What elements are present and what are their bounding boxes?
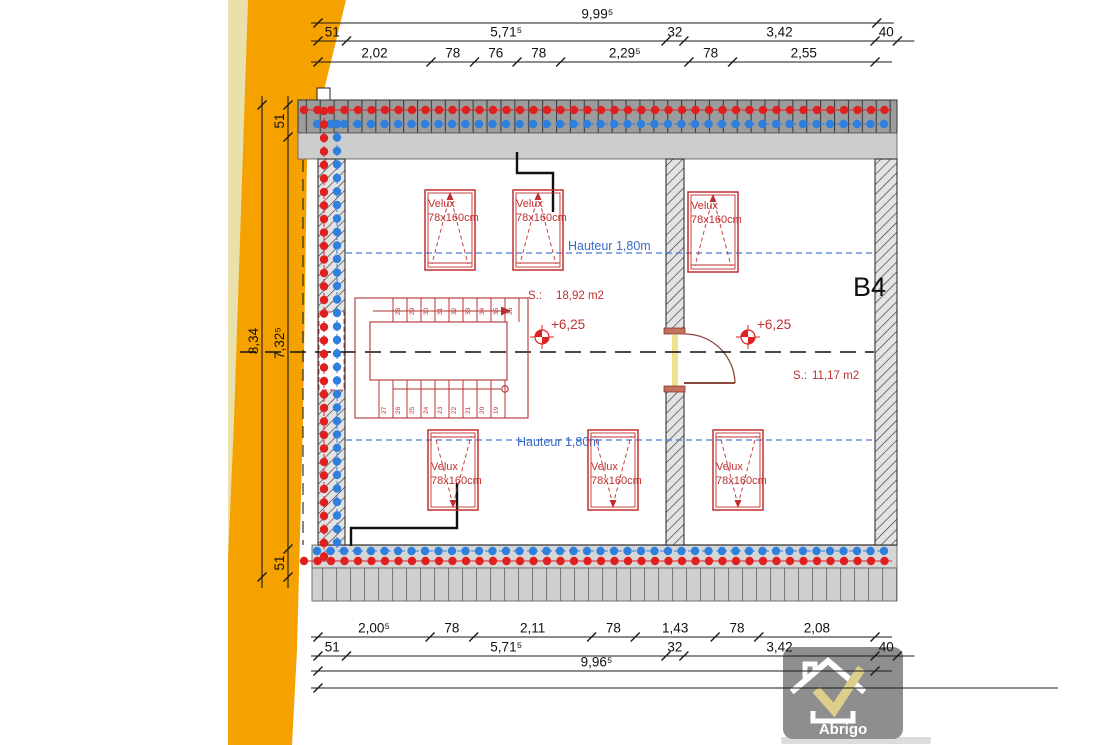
dim-label: 76 xyxy=(488,46,503,61)
dot-marker xyxy=(786,106,794,114)
dot-marker xyxy=(320,323,328,331)
dot-marker xyxy=(320,255,328,263)
dot-marker xyxy=(786,557,794,565)
dot-marker xyxy=(320,431,328,439)
dot-marker xyxy=(367,547,375,555)
interior-wall-upper xyxy=(666,159,684,333)
velux-label: Velux xyxy=(516,198,543,210)
dot-marker xyxy=(435,557,443,565)
dot-marker xyxy=(333,268,341,276)
dot-marker xyxy=(333,498,341,506)
dot-marker xyxy=(813,106,821,114)
dot-marker xyxy=(502,120,510,128)
dot-marker xyxy=(758,120,766,128)
dot-marker xyxy=(333,336,341,344)
dot-marker xyxy=(502,557,510,565)
dot-marker xyxy=(340,557,348,565)
dot-marker xyxy=(394,106,402,114)
dot-marker xyxy=(677,547,685,555)
dot-marker xyxy=(320,296,328,304)
dot-marker xyxy=(394,120,402,128)
dim-label: 51 xyxy=(325,640,340,655)
level-label: +6,25 xyxy=(757,317,791,332)
dot-marker xyxy=(340,547,348,555)
dot-marker xyxy=(333,538,341,546)
dot-marker xyxy=(812,547,820,555)
dot-marker xyxy=(556,547,564,555)
dot-marker xyxy=(799,106,807,114)
stair-number: 25 xyxy=(409,406,416,414)
dot-marker xyxy=(853,557,861,565)
dot-marker xyxy=(333,363,341,371)
dot-marker xyxy=(320,539,328,547)
dot-marker xyxy=(333,511,341,519)
velux-size-label: 78x160cm xyxy=(428,212,479,224)
dot-marker xyxy=(759,557,767,565)
dot-marker xyxy=(340,106,348,114)
dot-marker xyxy=(678,557,686,565)
velux-label: Velux xyxy=(691,200,718,212)
dot-marker xyxy=(300,557,308,565)
dot-marker xyxy=(745,106,753,114)
dot-marker xyxy=(826,120,834,128)
dot-marker xyxy=(745,557,753,565)
dot-marker xyxy=(320,147,328,155)
dim-label-wall-bottom: 51 xyxy=(272,555,287,570)
dot-marker xyxy=(623,120,631,128)
dot-marker xyxy=(320,174,328,182)
dot-marker xyxy=(320,309,328,317)
dot-marker xyxy=(569,547,577,555)
dim-label: 3,42 xyxy=(766,640,792,655)
dot-marker xyxy=(320,107,328,115)
dot-marker xyxy=(556,120,564,128)
dim-label: 32 xyxy=(667,25,682,40)
dot-marker xyxy=(610,106,618,114)
dot-marker xyxy=(610,120,618,128)
dot-marker xyxy=(333,120,341,128)
dot-marker xyxy=(867,106,875,114)
dot-marker xyxy=(610,547,618,555)
dot-marker xyxy=(596,547,604,555)
stair-number: 31 xyxy=(437,307,444,315)
door-jamb-top xyxy=(664,328,685,334)
dot-marker xyxy=(381,106,389,114)
dot-marker xyxy=(745,547,753,555)
dot-marker xyxy=(354,106,362,114)
dot-marker xyxy=(320,458,328,466)
dot-marker xyxy=(435,106,443,114)
dot-marker xyxy=(758,547,766,555)
dot-marker xyxy=(333,187,341,195)
corner-marker xyxy=(317,88,330,100)
dot-marker xyxy=(320,350,328,358)
velux-label: Velux xyxy=(431,461,458,473)
stair-number: 29 xyxy=(409,307,416,315)
dot-marker xyxy=(529,120,537,128)
velux-label: Velux xyxy=(716,461,743,473)
dim-label-inner-height: 7,32⁵ xyxy=(272,327,287,359)
dot-marker xyxy=(367,106,375,114)
dot-marker xyxy=(731,120,739,128)
dot-marker xyxy=(333,228,341,236)
dot-marker xyxy=(380,547,388,555)
dot-marker xyxy=(664,106,672,114)
dot-marker xyxy=(880,547,888,555)
dot-marker xyxy=(880,557,888,565)
dot-marker xyxy=(300,106,308,114)
dot-marker xyxy=(826,106,834,114)
dot-marker xyxy=(839,120,847,128)
dot-marker xyxy=(624,557,632,565)
dim-label: 1,43 xyxy=(662,621,688,636)
dot-marker xyxy=(475,557,483,565)
dot-marker xyxy=(731,547,739,555)
dot-marker xyxy=(320,282,328,290)
dim-label: 78 xyxy=(531,46,546,61)
velux-label: Velux xyxy=(591,461,618,473)
dot-marker xyxy=(327,557,335,565)
dot-marker xyxy=(637,106,645,114)
dot-marker xyxy=(448,120,456,128)
dim-label: 9,96⁵ xyxy=(581,655,613,670)
stair-number: 34 xyxy=(479,307,486,315)
dot-marker xyxy=(650,120,658,128)
door-jamb-bottom xyxy=(664,386,685,392)
door-threshold xyxy=(672,335,678,386)
dot-marker xyxy=(866,547,874,555)
dot-marker xyxy=(596,120,604,128)
dim-label: 2,11 xyxy=(520,621,545,636)
velux-size-label: 78x160cm xyxy=(691,214,742,226)
dot-marker xyxy=(475,120,483,128)
dot-marker xyxy=(772,120,780,128)
section-label: B4 xyxy=(853,272,886,302)
dot-marker xyxy=(515,120,523,128)
dot-marker xyxy=(583,106,591,114)
floor-plan-canvas: Abrigo xyxy=(0,0,1120,745)
dot-marker xyxy=(704,120,712,128)
dot-marker xyxy=(866,120,874,128)
stair-number: 21 xyxy=(465,406,472,414)
dot-marker xyxy=(333,403,341,411)
area-value: 11,17 m2 xyxy=(812,370,859,382)
dot-marker xyxy=(462,557,470,565)
dot-marker xyxy=(367,120,375,128)
dot-marker xyxy=(354,557,362,565)
dot-marker xyxy=(333,390,341,398)
dot-marker xyxy=(826,557,834,565)
dot-marker xyxy=(880,106,888,114)
area-prefix: S.: xyxy=(793,370,807,382)
dot-marker xyxy=(320,120,328,128)
dot-marker xyxy=(333,133,341,141)
dot-marker xyxy=(664,547,672,555)
dot-marker xyxy=(569,120,577,128)
dot-marker xyxy=(448,557,456,565)
dim-label: 78 xyxy=(729,621,744,636)
top-wall-stud-band xyxy=(298,100,897,133)
dim-label-total-height: 8,34 xyxy=(246,327,261,354)
interior-wall-lower xyxy=(666,388,684,545)
velux-size-label: 78x160cm xyxy=(591,475,642,487)
dot-marker xyxy=(785,547,793,555)
dot-marker xyxy=(799,547,807,555)
dot-marker xyxy=(583,547,591,555)
stair-number: 27 xyxy=(381,406,388,414)
room1-area-label: S.: 18,92 m2 xyxy=(528,290,604,302)
velux-size-label: 78x160cm xyxy=(716,475,767,487)
dot-marker xyxy=(880,120,888,128)
dot-marker xyxy=(333,147,341,155)
dot-marker xyxy=(320,215,328,223)
dot-marker xyxy=(637,120,645,128)
dot-marker xyxy=(718,120,726,128)
dot-marker xyxy=(488,120,496,128)
dot-marker xyxy=(853,547,861,555)
dot-marker xyxy=(867,557,875,565)
stair-number: 20 xyxy=(479,406,486,414)
dot-marker xyxy=(333,444,341,452)
dot-marker xyxy=(381,557,389,565)
dot-marker xyxy=(853,106,861,114)
dot-marker xyxy=(516,557,524,565)
top-wall-plate-band xyxy=(298,133,897,159)
dot-marker xyxy=(434,120,442,128)
dot-marker xyxy=(570,557,578,565)
dot-marker xyxy=(705,557,713,565)
dot-marker xyxy=(394,557,402,565)
dot-marker xyxy=(320,188,328,196)
dot-marker xyxy=(718,557,726,565)
dot-marker xyxy=(333,376,341,384)
dot-marker xyxy=(488,547,496,555)
dot-marker xyxy=(651,106,659,114)
stair-number: 23 xyxy=(437,406,444,414)
dot-marker xyxy=(732,557,740,565)
dot-marker xyxy=(313,547,321,555)
dot-marker xyxy=(799,120,807,128)
dot-marker xyxy=(333,525,341,533)
dot-marker xyxy=(556,106,564,114)
dot-marker xyxy=(333,457,341,465)
hauteur-label-top: Hauteur 1,80m xyxy=(568,239,651,253)
dot-marker xyxy=(718,106,726,114)
dot-marker xyxy=(367,557,375,565)
dot-marker xyxy=(691,120,699,128)
dot-marker xyxy=(624,106,632,114)
dim-label-wall-top: 51 xyxy=(272,113,287,128)
dot-marker xyxy=(320,377,328,385)
dot-marker xyxy=(320,269,328,277)
dot-marker xyxy=(353,547,361,555)
dot-marker xyxy=(489,106,497,114)
dot-marker xyxy=(320,525,328,533)
logo-wordmark: Abrigo xyxy=(819,721,867,738)
dot-marker xyxy=(543,557,551,565)
dot-marker xyxy=(320,390,328,398)
dot-marker xyxy=(853,120,861,128)
dot-marker xyxy=(408,557,416,565)
stair-number: 24 xyxy=(423,406,430,414)
dot-marker xyxy=(678,106,686,114)
dim-label: 40 xyxy=(879,640,894,655)
dim-label: 78 xyxy=(444,621,459,636)
velux-size-label: 78x160cm xyxy=(516,212,567,224)
dot-marker xyxy=(333,201,341,209)
dot-marker xyxy=(650,547,658,555)
dot-marker xyxy=(333,282,341,290)
dot-marker xyxy=(839,547,847,555)
dot-marker xyxy=(556,557,564,565)
dot-marker xyxy=(516,106,524,114)
dot-marker xyxy=(421,106,429,114)
right-wall xyxy=(875,159,897,545)
dot-marker xyxy=(813,557,821,565)
dot-marker xyxy=(353,120,361,128)
dot-marker xyxy=(326,547,334,555)
dot-marker xyxy=(785,120,793,128)
dot-marker xyxy=(333,214,341,222)
dot-marker xyxy=(320,471,328,479)
dot-marker xyxy=(677,120,685,128)
stair-number: 22 xyxy=(451,406,458,414)
dot-marker xyxy=(772,547,780,555)
dot-marker xyxy=(529,547,537,555)
dot-marker xyxy=(320,485,328,493)
dot-marker xyxy=(705,106,713,114)
dot-marker xyxy=(461,120,469,128)
dot-marker xyxy=(320,363,328,371)
dot-marker xyxy=(799,557,807,565)
dot-marker xyxy=(489,557,497,565)
dot-marker xyxy=(691,547,699,555)
dim-label: 40 xyxy=(879,25,894,40)
dot-marker xyxy=(320,242,328,250)
dot-marker xyxy=(448,547,456,555)
dim-label: 2,00⁵ xyxy=(358,621,390,636)
dot-marker xyxy=(408,106,416,114)
dim-label: 5,71⁵ xyxy=(490,640,522,655)
dot-marker xyxy=(320,444,328,452)
dot-marker xyxy=(407,120,415,128)
dim-label: 2,08 xyxy=(804,621,830,636)
dot-marker xyxy=(502,547,510,555)
dot-marker xyxy=(542,120,550,128)
dim-label: 2,02 xyxy=(361,46,387,61)
dot-marker xyxy=(333,174,341,182)
dot-marker xyxy=(320,201,328,209)
dot-marker xyxy=(320,512,328,520)
area-prefix: S.: xyxy=(528,290,542,302)
dot-marker xyxy=(380,120,388,128)
dot-marker xyxy=(597,106,605,114)
stair-number: 30 xyxy=(423,307,430,315)
dot-marker xyxy=(772,106,780,114)
dot-marker xyxy=(623,547,631,555)
dot-marker xyxy=(320,161,328,169)
dot-marker xyxy=(637,557,645,565)
dot-marker xyxy=(320,417,328,425)
dot-marker xyxy=(434,547,442,555)
stair-number: 19 xyxy=(493,406,500,414)
dot-marker xyxy=(333,160,341,168)
dot-marker xyxy=(333,295,341,303)
dot-marker xyxy=(704,547,712,555)
dot-marker xyxy=(759,106,767,114)
dot-marker xyxy=(320,134,328,142)
dot-marker xyxy=(475,106,483,114)
stair-number: 35 xyxy=(493,307,500,315)
area-value: 18,92 m2 xyxy=(556,290,604,302)
dot-marker xyxy=(812,120,820,128)
dim-label: 3,42 xyxy=(766,25,792,40)
dot-marker xyxy=(583,557,591,565)
dot-marker xyxy=(333,417,341,425)
dim-label: 78 xyxy=(606,621,621,636)
dot-marker xyxy=(462,106,470,114)
dot-marker xyxy=(333,430,341,438)
dot-marker xyxy=(664,120,672,128)
dot-marker xyxy=(475,547,483,555)
dot-marker xyxy=(461,547,469,555)
dot-marker xyxy=(421,120,429,128)
dot-marker xyxy=(407,547,415,555)
dot-marker xyxy=(651,557,659,565)
dim-label: 32 xyxy=(667,640,682,655)
dot-marker xyxy=(840,106,848,114)
dot-marker xyxy=(448,106,456,114)
velux-size-label: 78x160cm xyxy=(431,475,482,487)
dot-marker xyxy=(745,120,753,128)
dim-label: 2,55 xyxy=(791,46,817,61)
dim-label: 78 xyxy=(703,46,718,61)
dot-marker xyxy=(718,547,726,555)
dot-marker xyxy=(333,349,341,357)
dot-marker xyxy=(542,547,550,555)
velux-label: Velux xyxy=(428,198,455,210)
dot-marker xyxy=(691,106,699,114)
dim-label: 51 xyxy=(325,25,340,40)
stair-number: 36 xyxy=(507,307,514,315)
dot-marker xyxy=(515,547,523,555)
dot-marker xyxy=(320,228,328,236)
dot-marker xyxy=(333,241,341,249)
dot-marker xyxy=(320,498,328,506)
dot-marker xyxy=(421,557,429,565)
dot-marker xyxy=(637,547,645,555)
dot-marker xyxy=(320,336,328,344)
dot-marker xyxy=(597,557,605,565)
dot-marker xyxy=(691,557,699,565)
room2-area-label: S.: 11,17 m2 xyxy=(793,370,859,382)
dot-marker xyxy=(772,557,780,565)
dot-marker xyxy=(840,557,848,565)
bottom-wall-rafter-band xyxy=(312,568,897,601)
stair-number: 28 xyxy=(395,307,402,315)
dot-marker xyxy=(664,557,672,565)
dot-marker xyxy=(320,552,328,560)
dot-marker xyxy=(826,547,834,555)
dot-marker xyxy=(333,322,341,330)
dot-marker xyxy=(421,547,429,555)
dot-marker xyxy=(732,106,740,114)
dot-marker xyxy=(320,404,328,412)
dim-label: 5,71⁵ xyxy=(490,25,522,40)
level-label: +6,25 xyxy=(551,317,585,332)
stair-number: 32 xyxy=(451,307,458,315)
dot-marker xyxy=(394,547,402,555)
